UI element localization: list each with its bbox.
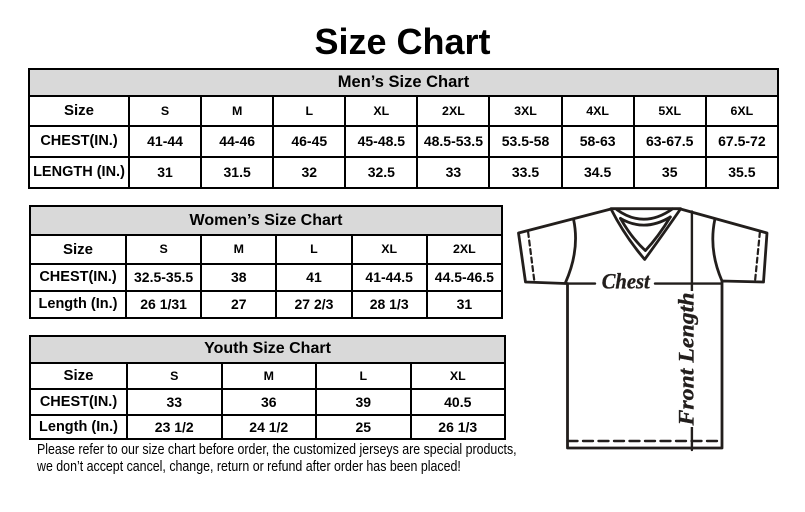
svg-text:Chest: Chest	[602, 269, 651, 294]
svg-text:Front Length: Front Length	[674, 293, 699, 427]
